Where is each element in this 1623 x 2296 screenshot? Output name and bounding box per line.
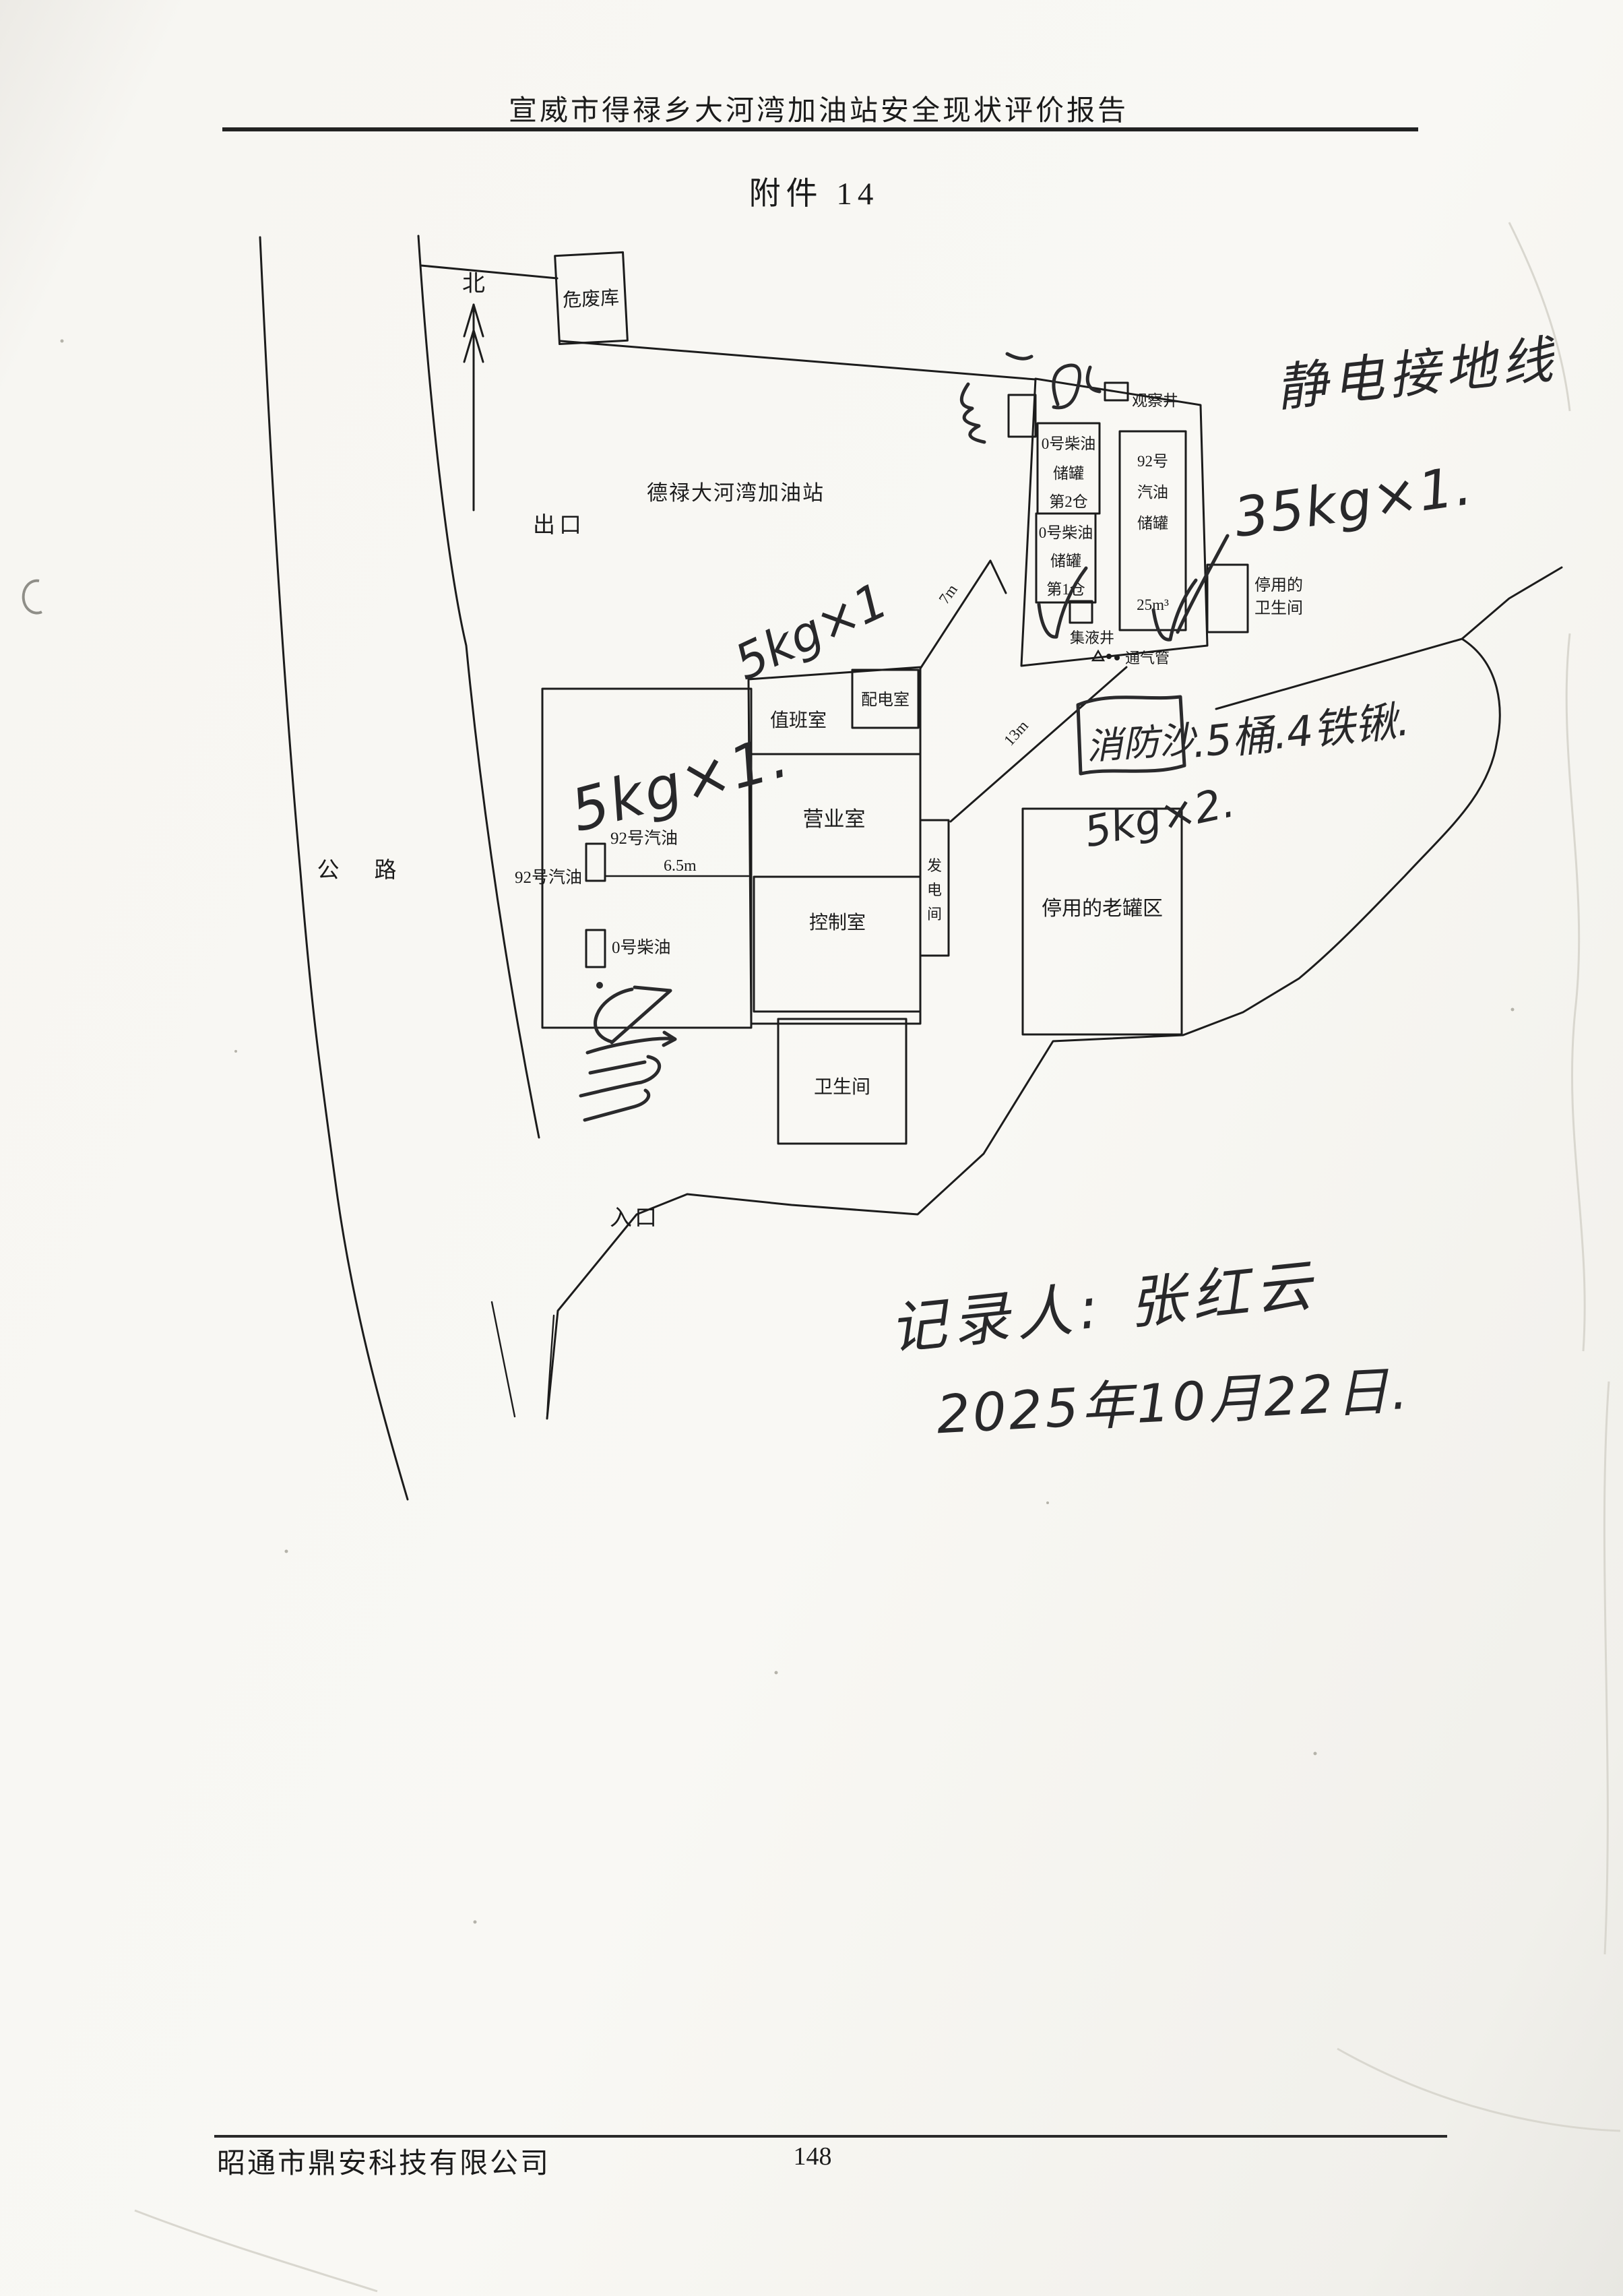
road-inner-line <box>418 236 539 1138</box>
business-room-label: 营业室 <box>803 807 866 831</box>
control-room-label: 控制室 <box>809 912 866 933</box>
diesel-tank-bay2-line2: 储罐 <box>1053 465 1084 482</box>
attachment-title: 附件 14 <box>749 177 879 212</box>
disused-toilet-line2: 卫生间 <box>1254 599 1303 617</box>
svg-text:13m: 13m <box>1000 717 1031 749</box>
exit-label: 出口 <box>533 513 585 538</box>
diesel-tank-bay2-line3: 第2仓 <box>1049 493 1088 510</box>
header-rule <box>222 127 1418 131</box>
dispenser-0-box <box>586 930 605 967</box>
tank-enclosure: 观察井 0号柴油 储罐 第2仓 0号柴油 储罐 第1仓 92号 汽油 储罐 25… <box>1009 379 1207 666</box>
disused-toilet: 停用的 卫生间 <box>1207 565 1303 632</box>
handwriting-recorder: 记录人: 张红云 <box>887 1251 1322 1362</box>
diesel-tank-bay1-line3: 第1仓 <box>1046 581 1085 598</box>
scanned-report-page: 宣威市得禄乡大河湾加油站安全现状评价报告 附件 14 公 路 北 危废库 德禄大… <box>0 0 1623 2296</box>
fence-west-segment <box>421 266 557 278</box>
north-arrow: 北 <box>462 272 485 510</box>
hazardous-waste-store-label: 危废库 <box>562 287 620 311</box>
generator-room-char2: 电 <box>927 881 942 898</box>
power-room-label: 配电室 <box>861 691 910 709</box>
dispenser-0-label: 0号柴油 <box>612 938 671 957</box>
svg-text:7m: 7m <box>936 581 961 607</box>
diesel-tank-bay2-line1: 0号柴油 <box>1042 435 1096 452</box>
observation-well-label: 观察井 <box>1132 392 1178 409</box>
disused-toilet-line1: 停用的 <box>1254 576 1303 594</box>
station-name-label: 德禄大河湾加油站 <box>647 481 825 505</box>
site-plan-drawing: 宣威市得禄乡大河湾加油站安全现状评价报告 附件 14 公 路 北 危废库 德禄大… <box>0 0 1623 2296</box>
handwriting-5kg-x2: 5kg×2. <box>1080 777 1239 857</box>
disused-old-tank-area-label: 停用的老罐区 <box>1042 898 1163 920</box>
road-label-char2: 路 <box>375 858 397 883</box>
toilet-label: 卫生间 <box>814 1076 870 1098</box>
sump-well-label: 集液井 <box>1070 629 1114 646</box>
report-header-title: 宣威市得禄乡大河湾加油站安全现状评价报告 <box>509 95 1128 127</box>
handwriting-date: 2025年10月22日. <box>935 1361 1412 1446</box>
tank-enclosure-outline <box>1021 379 1207 666</box>
sump-well-box <box>1070 601 1092 623</box>
control-room-box <box>754 877 920 1012</box>
road-lines <box>260 236 554 1499</box>
generator-room: 发 电 间 <box>920 820 949 956</box>
road-label-char1: 公 <box>317 859 340 883</box>
hazardous-waste-store: 危废库 <box>555 252 628 344</box>
diesel-tank-bay1-line1: 0号柴油 <box>1039 524 1093 541</box>
handwriting-5kg-island: 5kg×1. <box>564 722 797 845</box>
dimension-65m-label: 6.5m <box>664 857 697 875</box>
dimension-7m: 7m <box>920 561 1006 669</box>
generator-room-char1: 发 <box>927 857 942 874</box>
handwriting-fire-sand: 消防沙 <box>1085 718 1199 768</box>
unloading-point-box <box>1009 395 1036 437</box>
handwriting-35kg-extinguisher: 35kg×1. <box>1230 454 1477 549</box>
footer-rule <box>214 2135 1447 2138</box>
diesel-tank-bay1: 0号柴油 储罐 第1仓 <box>1036 514 1095 602</box>
toilet-building: 卫生间 <box>778 1019 906 1144</box>
handwriting-corner-scribble <box>961 354 1100 442</box>
handwriting-vertical-scribble <box>581 982 675 1120</box>
handwriting-fire-sand-note: 消防沙 .5桶.4铁锹. 5kg×2. <box>1078 695 1412 857</box>
diesel-tank-bay1-line2: 储罐 <box>1050 553 1081 569</box>
gasoline-tank-line2: 汽油 <box>1137 484 1168 501</box>
fence-to-tank-area <box>561 341 1036 379</box>
driveway-edge-b <box>492 1302 515 1417</box>
gasoline-tank-line1: 92号 <box>1137 453 1168 470</box>
dispenser-92-box <box>586 844 605 881</box>
north-label: 北 <box>462 272 485 297</box>
footer-company: 昭通市鼎安科技有限公司 <box>217 2148 550 2179</box>
footer-page-number: 148 <box>794 2142 832 2171</box>
dispenser-92-left-label: 92号汽油 <box>515 868 582 887</box>
gasoline-tank-line3: 储罐 <box>1137 515 1168 532</box>
handwriting-grounding-note: 静电接地线 <box>1273 329 1561 418</box>
entrance-label: 入口 <box>610 1206 660 1231</box>
scan-creases <box>24 222 1620 2291</box>
handwriting-5kg-power-room: 5kg×1 <box>726 571 896 691</box>
gasoline-tank: 92号 汽油 储罐 25m³ <box>1120 431 1186 630</box>
diesel-tank-bay2: 0号柴油 储罐 第2仓 <box>1038 423 1100 514</box>
vent-pipe-label: 通气管 <box>1125 650 1170 666</box>
generator-room-char3: 间 <box>927 906 942 923</box>
